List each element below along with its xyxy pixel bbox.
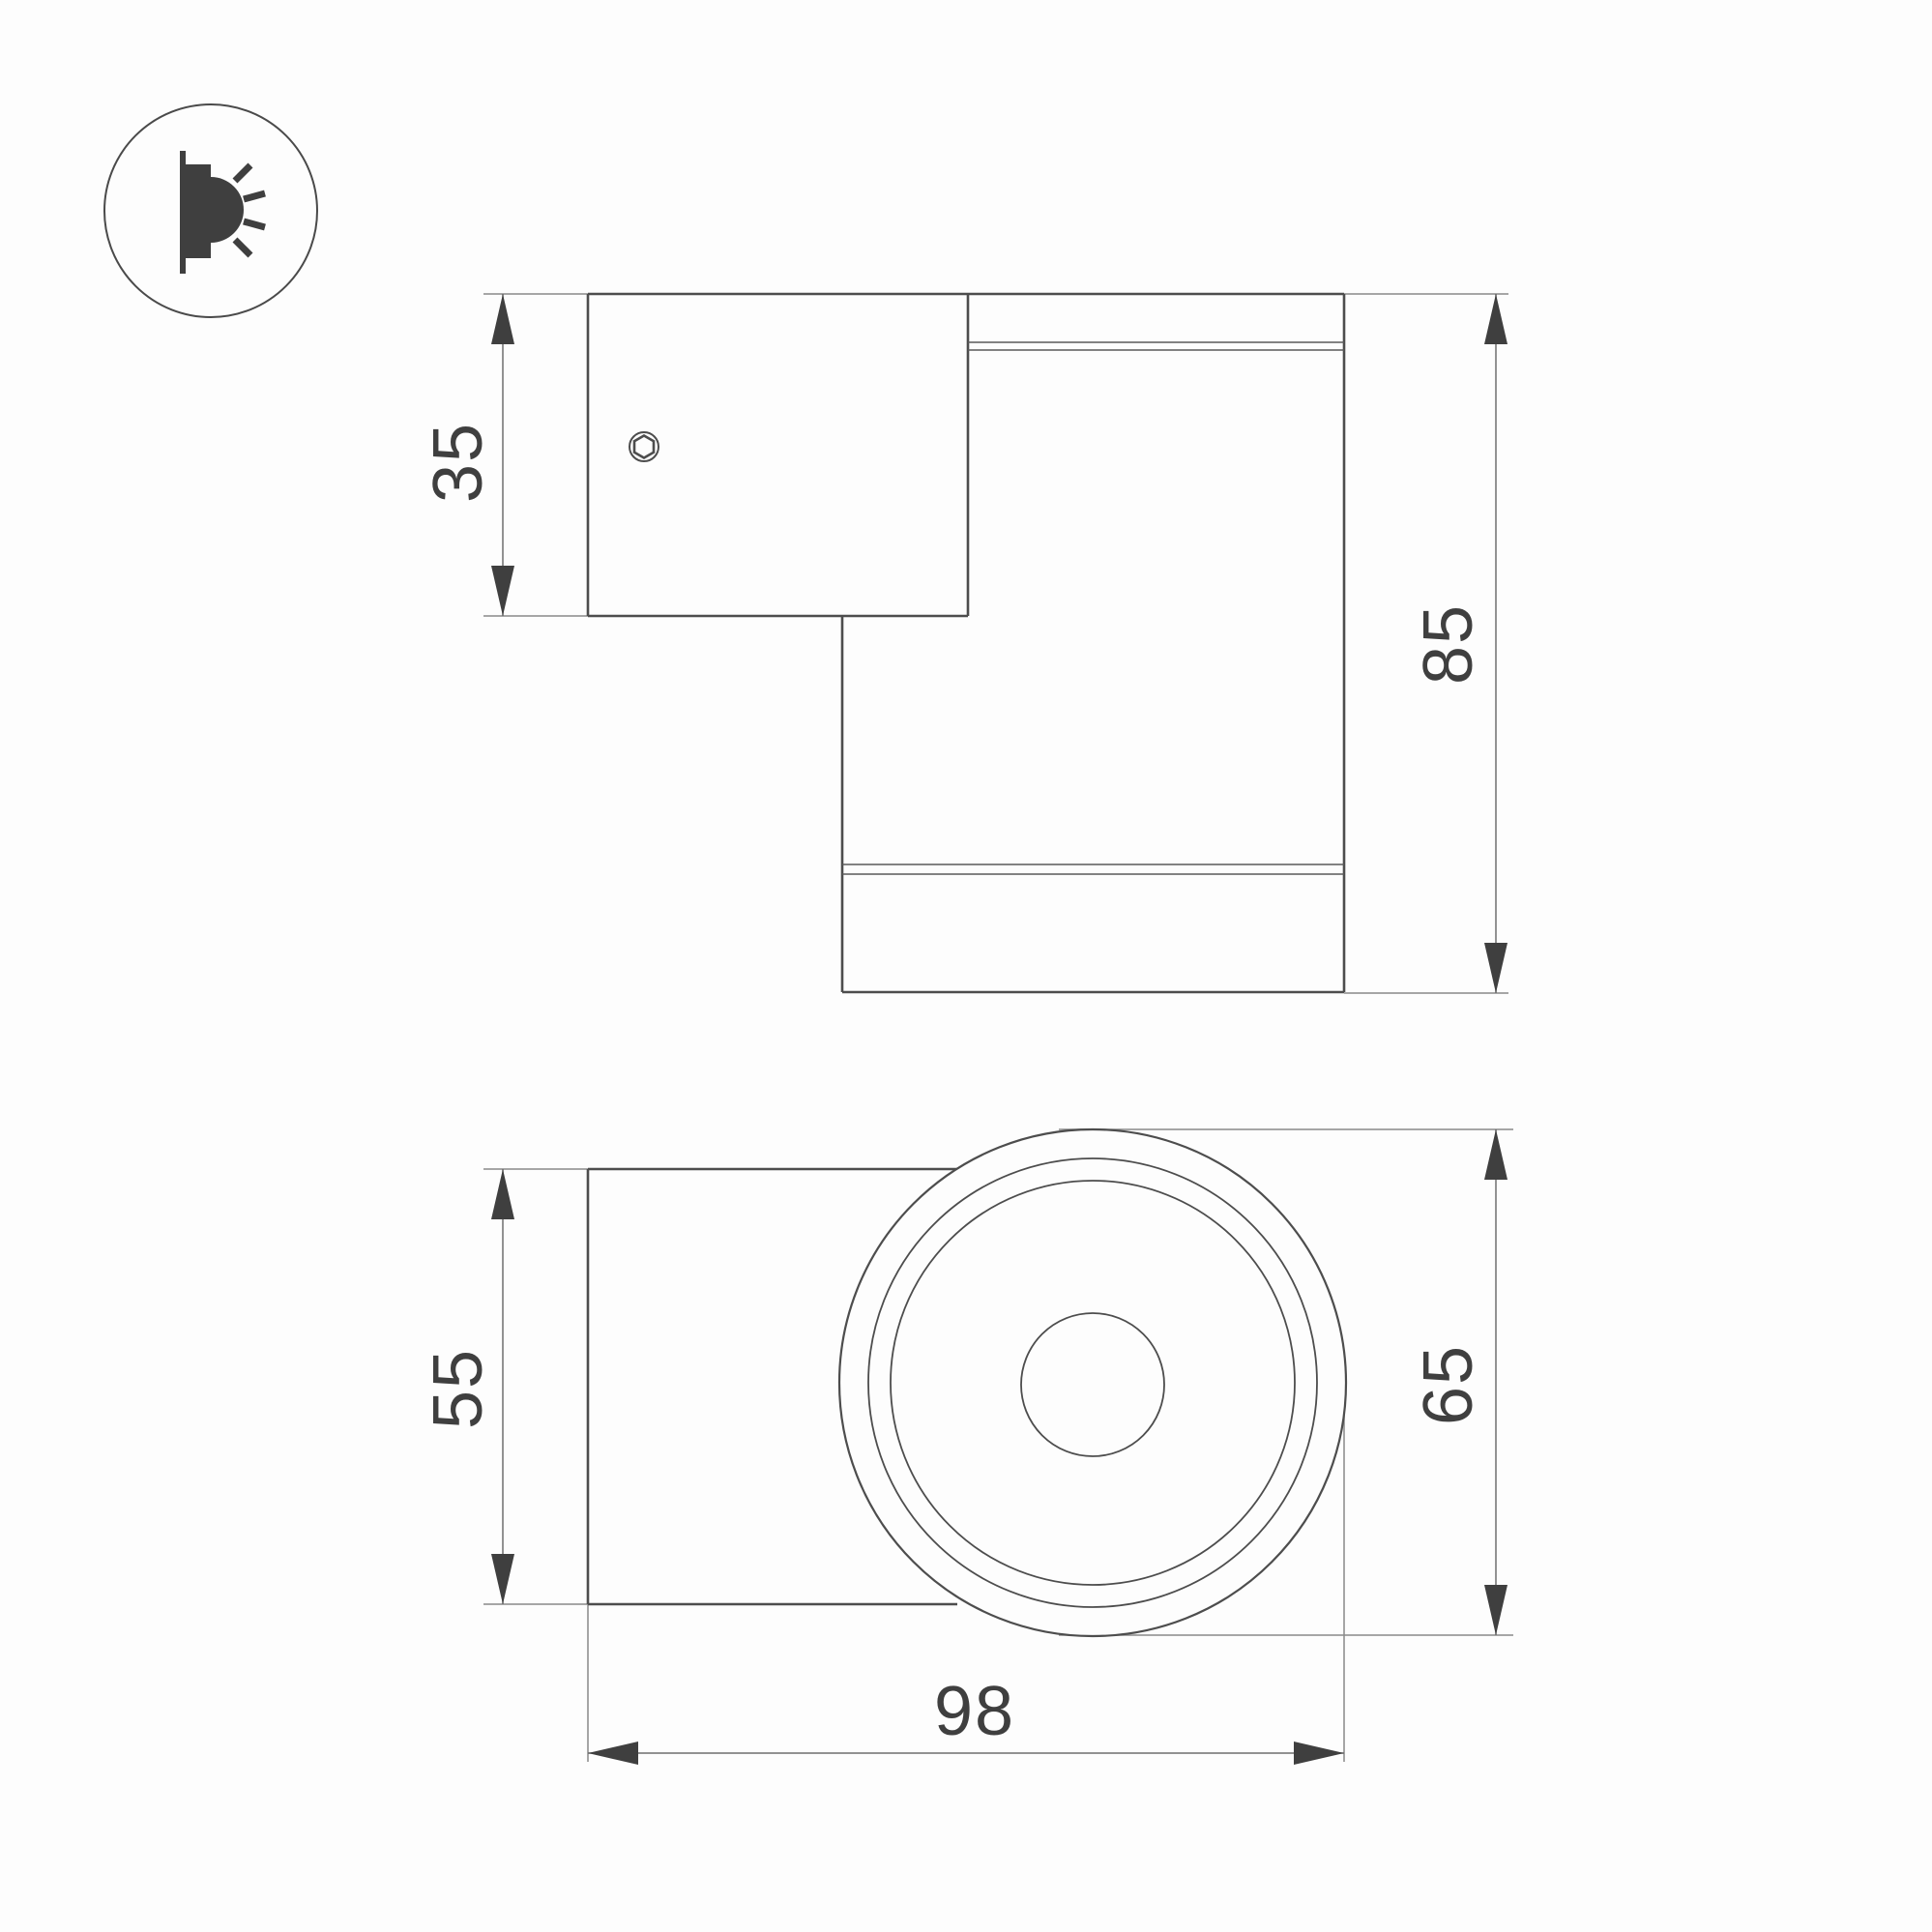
dimension-label-plate-height: 35 [420, 422, 497, 503]
arrow-up-icon [491, 1169, 514, 1219]
wall-lamp-badge [104, 104, 317, 317]
arrow-down-icon [491, 1554, 514, 1604]
dimension-body-diameter: 65 [1410, 1129, 1508, 1635]
lamp-face-circles [839, 1129, 1346, 1636]
arrow-up-icon [491, 294, 514, 344]
dimension-label-overall-height: 85 [1410, 603, 1487, 685]
dimension-overall-height: 85 [1410, 294, 1508, 993]
arrow-down-icon [491, 566, 514, 616]
arrow-up-icon [1484, 1129, 1508, 1180]
dimension-plate-width: 55 [420, 1169, 514, 1604]
outer-rim-circle [839, 1129, 1346, 1636]
dimension-label-overall-depth: 98 [934, 1673, 1015, 1750]
dimension-label-body-diameter: 65 [1410, 1344, 1487, 1425]
arrow-right-icon [1294, 1742, 1344, 1765]
arrow-down-icon [1484, 1585, 1508, 1635]
screw-hex-socket-icon [634, 436, 654, 458]
icon-lamp-body [184, 164, 211, 258]
side-view: 35 85 [420, 294, 1508, 993]
dimension-overall-depth: 98 [588, 1673, 1344, 1765]
front-view: 55 65 98 [420, 1129, 1513, 1765]
dimension-plate-height: 35 [420, 294, 514, 616]
arrow-down-icon [1484, 943, 1508, 993]
lamp-body-outline [842, 294, 1344, 992]
dimension-label-plate-width: 55 [420, 1348, 497, 1429]
arrow-up-icon [1484, 294, 1508, 344]
arrow-left-icon [588, 1742, 638, 1765]
technical-drawing-canvas: 35 85 [0, 0, 1932, 1932]
